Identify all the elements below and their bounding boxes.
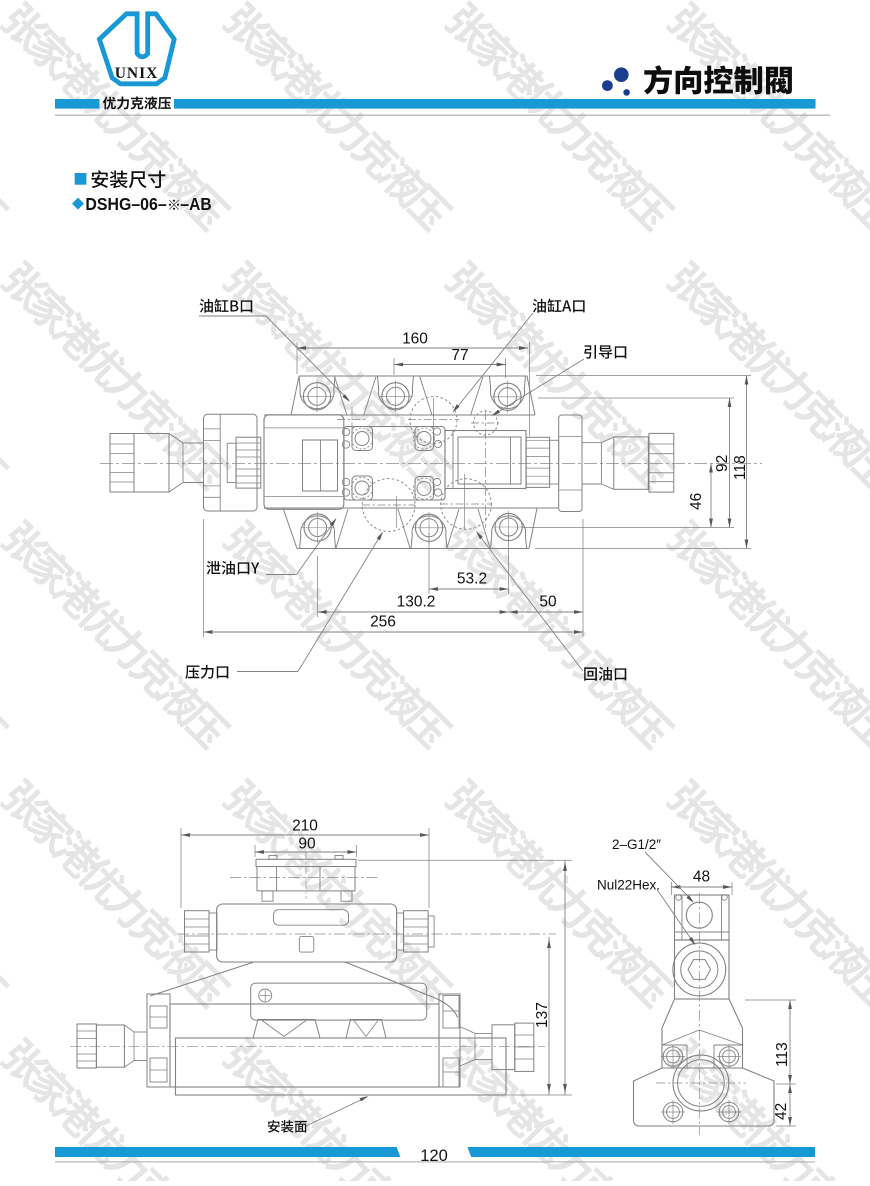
svg-text:137: 137	[534, 1002, 551, 1028]
svg-text:120: 120	[420, 1147, 448, 1165]
svg-text:UNIX: UNIX	[115, 65, 159, 82]
svg-text:90: 90	[298, 836, 316, 853]
svg-text:77: 77	[451, 347, 468, 364]
svg-text:160: 160	[402, 331, 428, 348]
svg-text:53.2: 53.2	[457, 571, 487, 588]
svg-text:130.2: 130.2	[397, 594, 436, 611]
svg-text:113: 113	[774, 1042, 791, 1067]
svg-text:–AB: –AB	[180, 194, 211, 214]
svg-text:2–G1/2″: 2–G1/2″	[612, 837, 661, 852]
svg-text:210: 210	[292, 818, 318, 835]
svg-text:118: 118	[732, 455, 749, 480]
svg-text:Nul22Hex.: Nul22Hex.	[597, 878, 660, 893]
svg-text:48: 48	[693, 869, 710, 886]
svg-text:DSHG–06–: DSHG–06–	[85, 194, 167, 214]
svg-text:50: 50	[539, 594, 557, 611]
svg-text:256: 256	[370, 614, 396, 631]
svg-text:46: 46	[688, 493, 705, 510]
svg-text:92: 92	[714, 455, 731, 472]
svg-text:42: 42	[773, 1103, 790, 1120]
